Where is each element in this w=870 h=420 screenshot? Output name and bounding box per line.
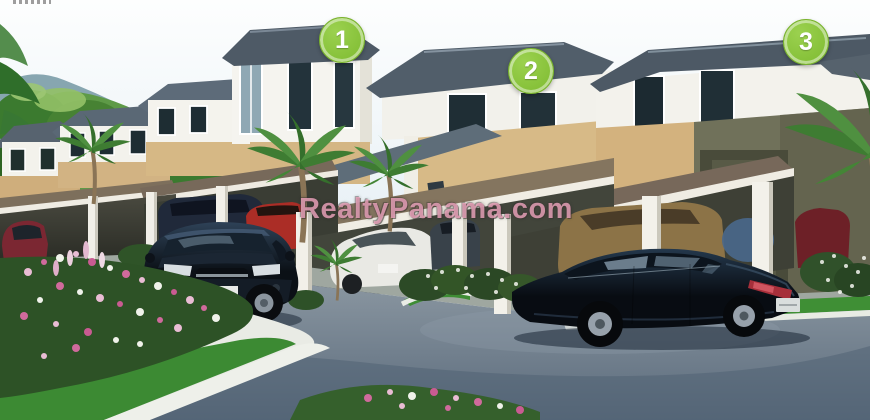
cropped-text-fragment bbox=[13, 0, 51, 4]
unit-marker-3: 3 bbox=[783, 19, 829, 65]
unit-marker-2-label: 2 bbox=[524, 57, 538, 86]
unit-marker-2: 2 bbox=[508, 48, 554, 94]
unit-marker-1: 1 bbox=[319, 17, 365, 63]
unit-marker-1-label: 1 bbox=[335, 26, 349, 55]
watermark: RealtyPanama.com bbox=[299, 193, 573, 226]
unit-marker-3-label: 3 bbox=[799, 28, 813, 57]
property-photo: RealtyPanama.com 1 2 3 bbox=[0, 0, 870, 420]
